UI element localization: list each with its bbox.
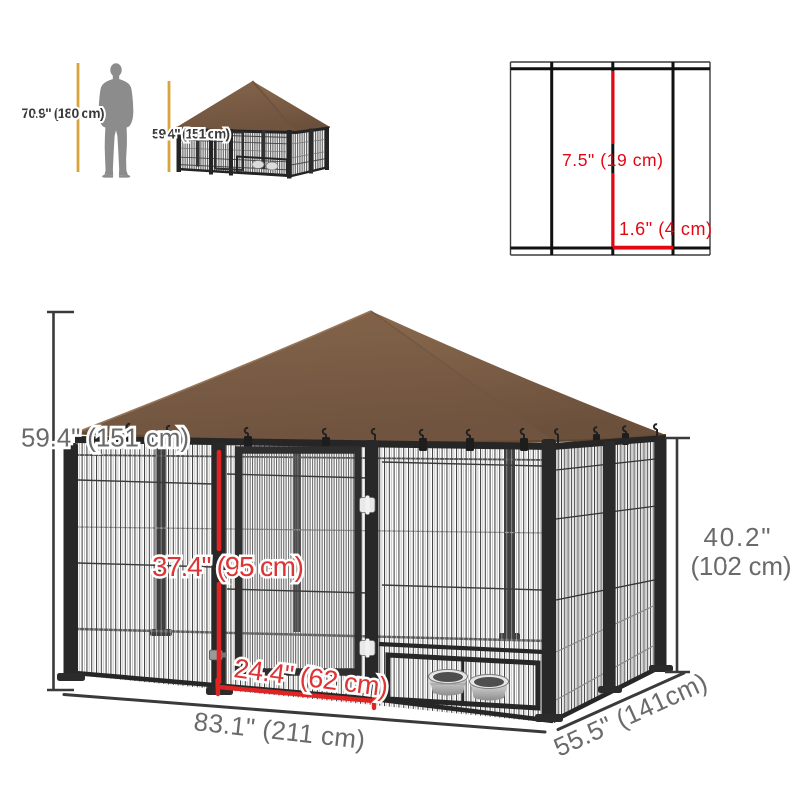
svg-text:59.4" (151 cm): 59.4" (151 cm) [21, 423, 189, 453]
svg-text:(102 cm): (102 cm) [691, 551, 792, 581]
svg-text:7.5" (19 cm): 7.5" (19 cm) [562, 150, 663, 170]
svg-text:59.4" (151 cm): 59.4" (151 cm) [152, 126, 230, 142]
svg-text:37.4" (95 cm): 37.4" (95 cm) [152, 551, 304, 582]
svg-text:70.9" (180 cm): 70.9" (180 cm) [22, 105, 105, 121]
svg-text:1.6" (4 cm): 1.6" (4 cm) [619, 219, 712, 239]
svg-text:40.2": 40.2" [704, 522, 771, 552]
